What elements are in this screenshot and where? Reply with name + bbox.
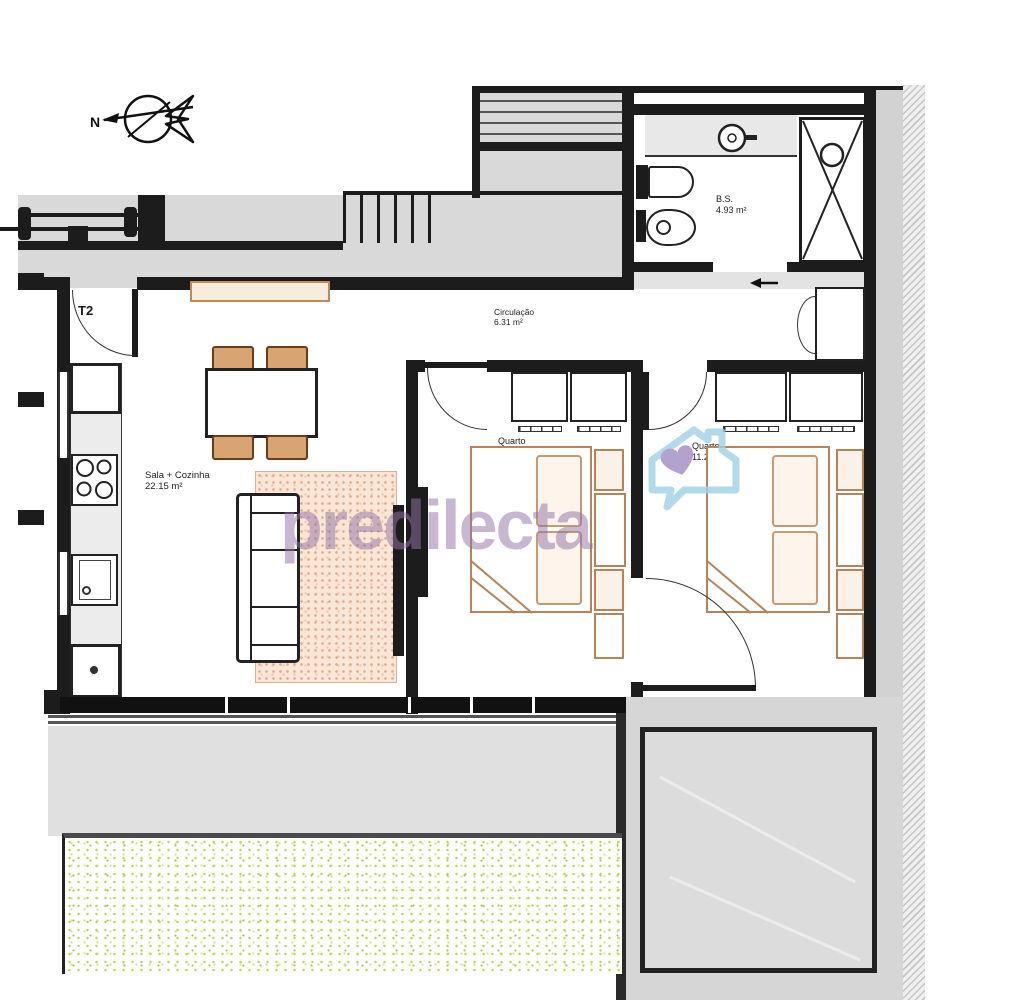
compass-north-label: N (90, 114, 100, 130)
wardrobe-rail (577, 426, 621, 432)
bathroom-bottom-wall (787, 262, 864, 272)
dining-chair (212, 435, 254, 460)
bathroom-left-wall (622, 90, 634, 288)
wardrobe-rail (797, 426, 855, 432)
watermark-text: predilecta (280, 490, 591, 560)
watermark-logo-icon (642, 418, 747, 513)
bathroom-name: B.S. (716, 194, 747, 205)
toilet-icon (648, 166, 694, 198)
wardrobe (511, 372, 568, 422)
living-area: 22.15 m² (145, 481, 210, 492)
stairwell-block-shading (645, 732, 872, 968)
dining-table (205, 368, 318, 438)
dresser (594, 613, 624, 659)
room-label-hall: Circulação 6.31 m² (494, 307, 534, 327)
sofa-cushion-line (252, 606, 298, 608)
wardrobe (789, 372, 863, 422)
pillow (772, 455, 818, 527)
window-mullion (287, 697, 290, 713)
corridor-top-wall (343, 191, 634, 195)
terrace-floor (48, 726, 622, 836)
stair-tread (480, 100, 630, 102)
kitchen-window (58, 372, 69, 458)
garden-grass (62, 833, 622, 974)
wardrobe (715, 372, 787, 422)
entrance-door-swing (72, 290, 135, 356)
headboard (836, 493, 864, 567)
bidet-tank (636, 210, 646, 242)
circulation-wall (487, 360, 643, 372)
sideboard (190, 281, 330, 302)
sofa-cushion-line (252, 644, 298, 646)
entry-arrow-icon (750, 277, 780, 290)
neighbour-hatch-strip (903, 85, 925, 1000)
fridge (70, 363, 121, 414)
stair-tread (480, 122, 630, 124)
top-boundary-wall (472, 86, 905, 93)
circulation-wall (406, 360, 425, 372)
pillow (772, 531, 818, 605)
floor-plan: B.S. 4.93 m² T2 Sala + Cozinha 22 (0, 0, 1032, 1000)
left-boundary-wall (57, 277, 70, 714)
window-band (60, 697, 630, 713)
facade-pillar (18, 392, 44, 407)
stove-burners-icon (72, 455, 117, 505)
wardrobe (570, 372, 627, 422)
window-mullion (225, 697, 228, 713)
window-mullion (532, 697, 535, 713)
washer-knob (90, 666, 98, 674)
headboard (594, 493, 626, 567)
corridor-stair-tread (343, 195, 346, 243)
stair-side-wall (472, 86, 480, 198)
railing-bar (20, 213, 138, 217)
bathroom-bottom-wall (634, 262, 713, 272)
nightstand (836, 449, 864, 491)
wardrobe-rail (518, 426, 562, 432)
stair-tread (480, 133, 630, 135)
corridor-pillar (138, 195, 165, 243)
shower-icon (801, 119, 864, 261)
room-label-living: Sala + Cozinha 22.15 m² (145, 470, 210, 492)
facade-pillar (18, 510, 44, 525)
stair-tread (480, 111, 630, 113)
bidet-drain (656, 220, 671, 235)
stair-landing-edge (480, 142, 630, 151)
corridor-stair-tread (411, 195, 414, 243)
nightstand (594, 449, 624, 491)
hall-name: Circulação (494, 307, 534, 317)
kitchen-sink-drain (82, 586, 91, 595)
living-name: Sala + Cozinha (145, 470, 210, 481)
window-mullion (470, 697, 473, 713)
railing-post (124, 207, 137, 237)
window-mullion (408, 697, 411, 713)
nightstand (836, 569, 864, 611)
corridor-stair-tread (428, 195, 431, 243)
toilet-tank (636, 165, 648, 199)
corridor-stair-tread (394, 195, 397, 243)
sofa-back-line (250, 496, 252, 660)
window-sill (48, 721, 640, 724)
railing-post (18, 207, 31, 240)
circulation-wall (707, 360, 876, 372)
patio-door-leaf (643, 685, 756, 691)
facade-pillar (18, 273, 44, 287)
window-sill (48, 715, 640, 718)
kitchen-window (58, 552, 69, 615)
bathroom-top-wall (630, 104, 876, 115)
corridor-wall (18, 241, 343, 250)
unit-type-label: T2 (78, 303, 93, 318)
hall-closet-door-swing (797, 296, 815, 354)
bathroom-area: 4.93 m² (716, 205, 747, 216)
bedroom1-door-swing (427, 368, 487, 430)
corridor-stair-tread (377, 195, 380, 243)
bidet-icon (646, 209, 696, 246)
dining-chair (266, 435, 308, 460)
north-compass-icon: N (90, 90, 202, 148)
corridor-stair-tread (360, 195, 363, 243)
washbasin-icon (712, 118, 760, 158)
hall-closet (815, 287, 865, 361)
dresser (836, 613, 864, 659)
hall-area: 6.31 m² (494, 317, 534, 327)
nightstand (594, 569, 624, 611)
room-label-bathroom: B.S. 4.93 m² (716, 194, 747, 216)
